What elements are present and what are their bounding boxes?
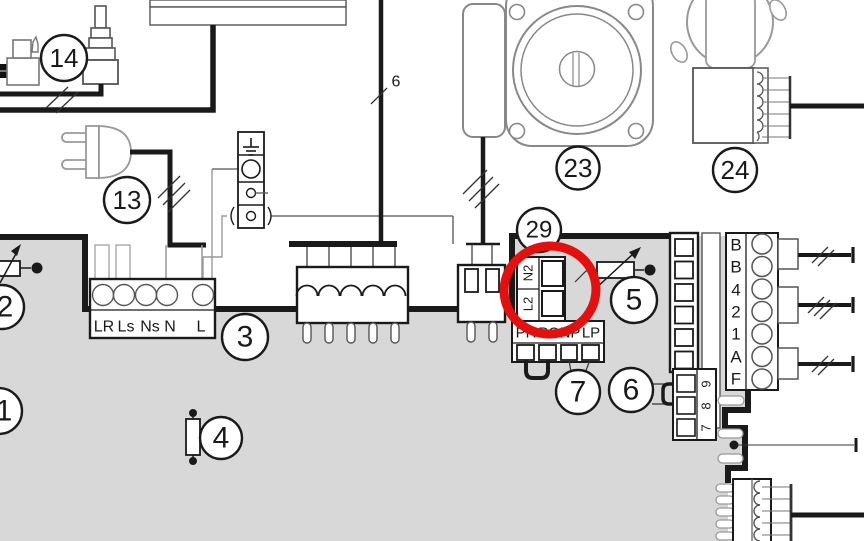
connector-pins [716,484,734,540]
fuse-paren-right [268,207,271,225]
label-2: 2 [731,303,740,322]
callout-2-label: 2 [0,291,13,324]
connector-bottom-right [716,479,864,541]
plug-pin [62,160,89,169]
spark-electrode [83,6,118,84]
connector-pin [489,322,497,342]
callout-14-label: 14 [50,43,79,73]
cable-break-marks-pump [463,170,499,208]
fuse-paren-left [231,207,234,225]
label-A: A [730,348,742,367]
label-9: 9 [699,380,714,387]
junction-dot [730,441,739,450]
callout-13-label: 13 [113,185,142,215]
junction-dot [645,265,656,276]
label-8: 8 [699,402,714,409]
wire-6-label: 6 [392,74,401,91]
label-7: 7 [699,424,714,431]
label-1: 1 [731,325,740,344]
label-LR: LR [94,319,114,336]
terminal-strip-right: B B 4 2 1 A F [726,233,853,390]
label-Ls: Ls [118,319,135,336]
label-N2: N2 [521,265,536,282]
callout-23-label: 23 [564,153,593,183]
component-23-pump: 23 [463,0,653,244]
callout-1-label: 1 [0,395,12,428]
wire-to-Ls [116,245,130,281]
wiring-diagram: 14 13 [0,0,864,541]
flame-icon [32,37,38,52]
diagram-canvas: 14 13 [0,0,864,541]
wire-to-LR [95,245,109,281]
label-4: 4 [731,281,740,300]
terminal-n2 [542,261,563,286]
earth-terminal-strip [203,132,453,281]
connector-pin [467,322,475,342]
callout-6-label: 6 [623,374,640,407]
connector-strip-6sq [670,233,698,372]
label-B2: B [730,258,741,277]
connector-29-n2-l2: N2 L2 29 [517,208,565,322]
junction-dot [32,263,43,274]
terminal-holes [93,285,214,306]
connector-5pole: 6 [289,0,408,343]
callout-5-label: 5 [626,284,643,317]
fuse-body [186,419,200,455]
pump-hub [560,52,595,87]
cable-break-marks-13 [158,176,190,212]
label-L2: L2 [521,297,536,311]
cable-break-marks-right [808,247,836,375]
callout-3-label: 3 [237,321,254,354]
terminal-l2 [542,291,563,316]
component-14-gas-valve: 14 [0,6,118,113]
label-LP: LP [582,325,600,342]
callout-29-label: 29 [526,217,553,244]
label-B1: B [730,236,741,255]
label-F: F [731,370,741,389]
callout-4-label: 4 [213,422,230,455]
terminal-squares [677,375,695,436]
component-24-valve-actuator: 24 [667,0,864,192]
label-L: L [197,319,206,336]
label-N: N [164,319,176,336]
pump-terminal-box [463,4,505,137]
plug-pin [62,133,89,142]
callout-24-label: 24 [721,155,750,185]
label-Ns: Ns [140,319,160,336]
tab-connectors [778,239,798,379]
external-wires [798,255,851,364]
callout-7-label: 7 [570,376,587,409]
